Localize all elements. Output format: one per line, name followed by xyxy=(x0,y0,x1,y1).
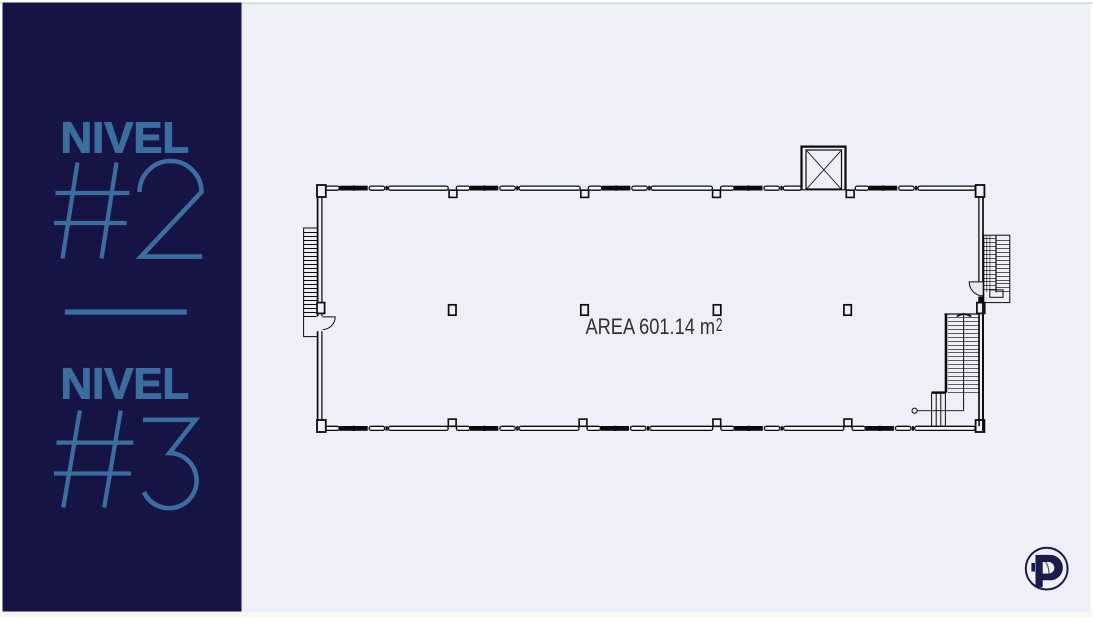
svg-text:NIVEL: NIVEL xyxy=(61,360,190,408)
svg-text:2: 2 xyxy=(716,315,723,335)
svg-text:NIVEL: NIVEL xyxy=(61,114,190,162)
svg-text:AREA 601.14 m: AREA 601.14 m xyxy=(586,314,716,339)
